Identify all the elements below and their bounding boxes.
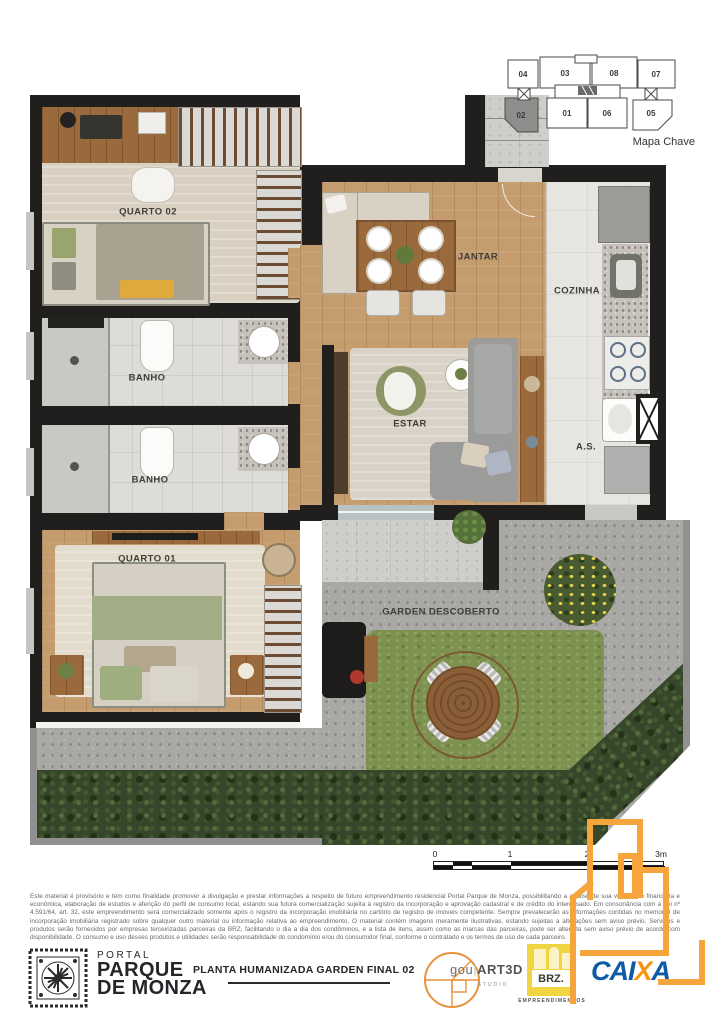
estar-tv-console (334, 352, 348, 494)
garden-flower-bush (544, 554, 616, 626)
building-outline-watermark (555, 808, 709, 1008)
estar-throw (384, 372, 416, 410)
window-left-2 (26, 332, 34, 380)
jantar-chair (366, 290, 400, 316)
stove-burner (610, 342, 626, 358)
stove-burner (610, 366, 626, 382)
banho2-toilet (140, 427, 174, 479)
quarto01-wardrobe (264, 585, 302, 713)
garden-sliding-door (338, 505, 434, 521)
garden-right-border (683, 520, 690, 755)
as-door-threshold (585, 505, 637, 521)
outdoor-left-hedge (36, 770, 322, 840)
wall-q2-jantar (300, 165, 322, 257)
banho2-drain (70, 462, 79, 471)
brz-building-shape (534, 949, 546, 969)
quarto02-throw-yellow (120, 280, 174, 298)
as-washer (604, 446, 650, 494)
plan-title-underline (228, 982, 390, 984)
unit-02-highlighted: 02 (517, 111, 526, 120)
room-label-estar: ESTAR (393, 419, 427, 430)
outdoor-left-border (30, 728, 37, 845)
estar-table-plant (455, 368, 467, 380)
room-label-as: A.S. (576, 442, 596, 453)
unit-04: 04 (519, 70, 528, 79)
garden-area (322, 520, 690, 845)
monza-ornament-logo-icon (28, 948, 88, 1008)
kitchen-right-wall (650, 165, 666, 521)
elevator-core (578, 86, 597, 95)
quarto02-door-gap (288, 248, 300, 298)
quarto02-pillow-gray (52, 262, 76, 290)
banho1-drain (70, 356, 79, 365)
garden-grill-shelf (364, 636, 378, 682)
banho1-shower-rail (48, 318, 104, 328)
jantar-centerpiece-plant (396, 246, 414, 264)
cozinha-sink-basin (616, 260, 636, 290)
quarto02-closet-top (178, 107, 302, 167)
quarto01-armchair (264, 545, 294, 575)
unit-01: 01 (563, 109, 572, 118)
jantar-plate (368, 260, 390, 282)
window-left-4 (26, 588, 34, 654)
quarto01-tv (112, 533, 198, 540)
estar-corridor-wall (322, 345, 334, 505)
estar-sofa-cushion (474, 344, 512, 434)
room-label-garden: GARDEN DESCOBERTO (382, 607, 499, 618)
as-tanque-basin (608, 404, 632, 434)
entry-door-gap (498, 168, 542, 182)
unit-03: 03 (561, 69, 570, 78)
plan-title: PLANTA HUMANIZADA GARDEN FINAL 02 (193, 964, 415, 976)
room-label-banho1: BANHO (129, 373, 166, 384)
room-label-jantar: JANTAR (458, 252, 498, 263)
quarto02-chair (132, 168, 174, 202)
studio-subtitle: STUDIO (470, 982, 516, 988)
room-label-banho2: BANHO (132, 475, 169, 486)
quarto01-plant (58, 663, 74, 679)
jantar-chair (412, 290, 446, 316)
mapa-chave-keymap: 04 03 08 07 02 01 06 05 Mapa Chave (483, 54, 695, 146)
stove-burner (630, 342, 646, 358)
gouart3d-logo-icon (420, 944, 484, 1014)
quarto02-laptop (80, 115, 122, 139)
window-left-1 (26, 212, 34, 270)
estar-shelf-decor (524, 376, 540, 392)
entry-stub-wall (465, 95, 485, 182)
as-shaft-x (636, 394, 662, 444)
brand-text-block: PORTAL PARQUE DE MONZA (97, 950, 207, 997)
garden-grill-plate (350, 670, 364, 684)
banho2-sink (248, 433, 280, 465)
quarto02-notebook (138, 112, 166, 134)
corridor-floor (300, 245, 322, 505)
quarto01-lamp (238, 663, 254, 679)
quarto01-pillow-white (150, 666, 198, 702)
banho1-toilet (140, 320, 174, 372)
room-label-quarto02: QUARTO 02 (119, 207, 177, 218)
studio-name: gou|ART3D (450, 962, 523, 977)
unit-06: 06 (603, 109, 612, 118)
jantar-plate (420, 228, 442, 250)
kitchen-floor-divider (545, 182, 547, 505)
garden-round-table (426, 666, 500, 740)
jantar-plate (420, 260, 442, 282)
quarto01-pillow-green (100, 666, 142, 700)
jantar-plate (368, 228, 390, 250)
banho1-sink (248, 326, 280, 358)
page: 04 03 08 07 02 01 06 05 Mapa Chave (0, 0, 709, 1024)
banho2-door-gap (288, 468, 300, 510)
quarto02-pillow-green (52, 228, 76, 258)
unit-05: 05 (647, 109, 656, 118)
brand-de-monza: DE MONZA (97, 979, 207, 997)
threshold-plant (452, 510, 486, 544)
studio-name-left: gou (450, 962, 473, 977)
estar-shelf-decor (526, 436, 538, 448)
mapa-chave-diagram: 04 03 08 07 02 01 06 05 (483, 54, 695, 146)
room-label-cozinha: COZINHA (554, 286, 600, 297)
studio-name-right: ART3D (477, 962, 523, 977)
quarto01-blanket-green (92, 596, 222, 640)
garden-grill (322, 622, 366, 698)
sliding-door-glass (338, 511, 434, 513)
quarto02-desk-lamp (60, 112, 76, 128)
banho1-door-gap (288, 362, 300, 404)
cozinha-fridge (598, 186, 650, 243)
scale-tick-1: 1 (508, 849, 513, 859)
window-left-3 (26, 448, 34, 496)
quarto01-door-gap (224, 512, 264, 530)
stove-burner (630, 366, 646, 382)
scale-tick-0: 0 (433, 849, 438, 859)
unit-07: 07 (652, 70, 661, 79)
outdoor-bottom-border (30, 838, 322, 845)
unit-08: 08 (610, 69, 619, 78)
room-label-quarto01: QUARTO 01 (118, 554, 176, 565)
mapa-chave-caption: Mapa Chave (615, 136, 695, 148)
